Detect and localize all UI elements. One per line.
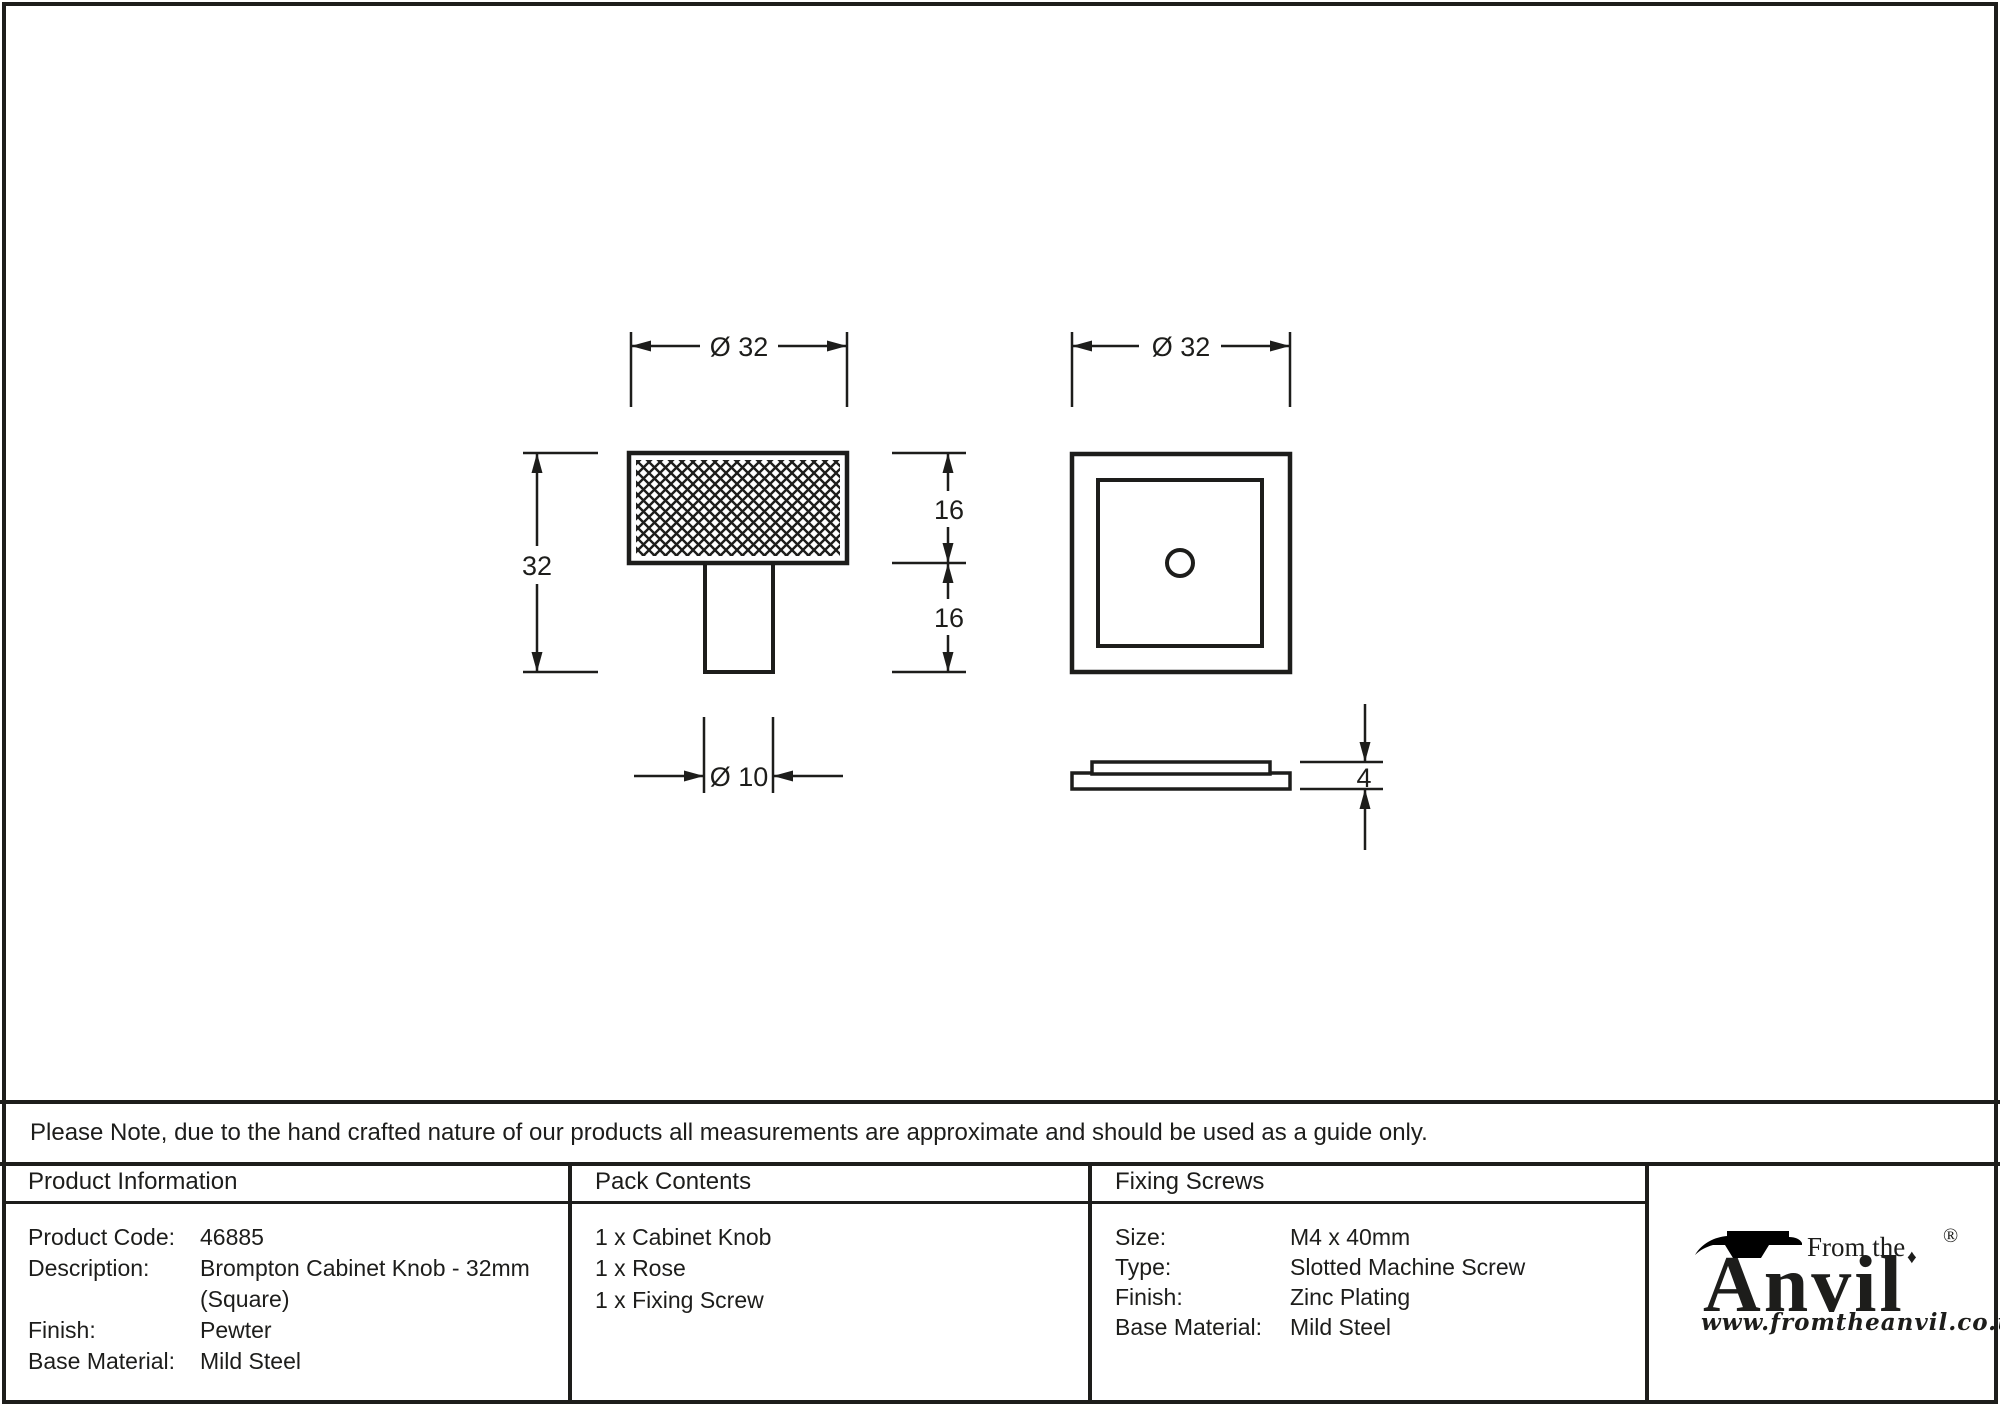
table-top-border: [0, 1162, 2000, 1166]
screw-size-label: Size:: [1115, 1222, 1166, 1252]
base-material-label: Base Material:: [28, 1346, 175, 1376]
logo-website: www.fromtheanvil.co.uk: [1701, 1309, 2000, 1337]
rose-front-view: [1072, 454, 1290, 672]
pack-item-screw: 1 x Fixing Screw: [595, 1285, 764, 1315]
screw-base-material-value: Mild Steel: [1290, 1312, 1391, 1342]
header-product-information: Product Information: [28, 1167, 237, 1197]
dim-rose-diameter: Ø 32: [1152, 332, 1211, 362]
rose-raised-plate: [1092, 762, 1270, 774]
table-divider-col2: [1088, 1162, 1092, 1400]
screw-finish-label: Finish:: [1115, 1282, 1183, 1312]
description-value-wrap: (Square): [200, 1284, 289, 1314]
screw-type-label: Type:: [1115, 1252, 1171, 1282]
disclaimer-note: Please Note, due to the hand crafted nat…: [30, 1118, 1428, 1148]
product-spec-sheet: Ø 32 32 16 16 Ø 10 Ø 32 4 Please Note, d…: [0, 0, 2000, 1406]
screw-finish-value: Zinc Plating: [1290, 1282, 1410, 1312]
knurl-pattern: [636, 460, 840, 556]
brand-logo: Anvil From the ♦ ® www.fromtheanvil.co.u…: [1695, 1225, 1970, 1340]
drawing-area-bottom-border: [0, 1100, 2000, 1104]
registered-trademark-icon: ®: [1943, 1225, 1958, 1248]
pack-item-knob: 1 x Cabinet Knob: [595, 1222, 771, 1252]
table-header-divider: [2, 1201, 1647, 1204]
table-divider-col3: [1645, 1162, 1649, 1400]
table-divider-col1: [568, 1162, 572, 1400]
description-label: Description:: [28, 1253, 149, 1283]
header-fixing-screws: Fixing Screws: [1115, 1167, 1264, 1197]
dim-stem-diameter: Ø 10: [710, 762, 769, 792]
description-value: Brompton Cabinet Knob - 32mm: [200, 1253, 530, 1283]
anvil-icon: [1691, 1229, 1803, 1265]
finish-label: Finish:: [28, 1315, 96, 1345]
technical-drawing: Ø 32 32 16 16 Ø 10 Ø 32 4: [0, 0, 2000, 1103]
finish-value: Pewter: [200, 1315, 272, 1345]
screw-base-material-label: Base Material:: [1115, 1312, 1262, 1342]
product-code-value: 46885: [200, 1222, 264, 1252]
knob-stem: [705, 563, 773, 672]
screw-type-value: Slotted Machine Screw: [1290, 1252, 1525, 1282]
knob-side-view: [629, 453, 847, 672]
dim-rose-thickness: 4: [1356, 763, 1371, 793]
screw-size-value: M4 x 40mm: [1290, 1222, 1410, 1252]
logo-tagline: From the: [1807, 1233, 1905, 1261]
header-pack-contents: Pack Contents: [595, 1167, 751, 1197]
base-material-value: Mild Steel: [200, 1346, 301, 1376]
dim-stem-height: 16: [934, 603, 964, 633]
dim-knob-diameter: Ø 32: [710, 332, 769, 362]
rose-screw-hole: [1167, 550, 1193, 576]
dim-head-height: 16: [934, 495, 964, 525]
dim-knob-height: 32: [522, 551, 552, 581]
rose-side-view: [1072, 762, 1290, 789]
product-code-label: Product Code:: [28, 1222, 175, 1252]
logo-diamond-icon: ♦: [1907, 1247, 1917, 1269]
pack-item-rose: 1 x Rose: [595, 1253, 686, 1283]
